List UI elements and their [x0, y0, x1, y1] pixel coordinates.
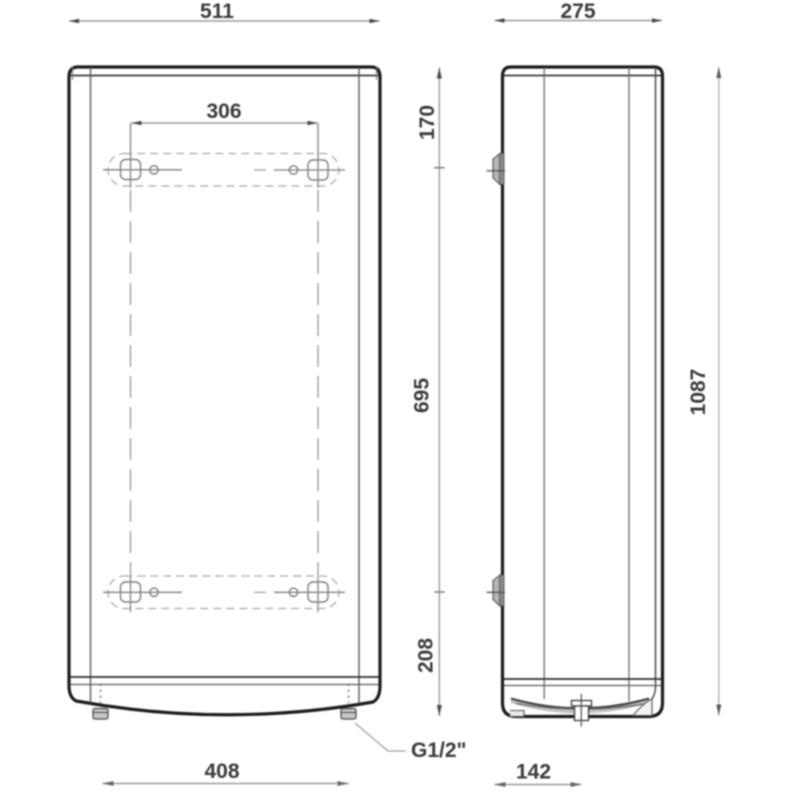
svg-text:208: 208: [415, 638, 438, 673]
svg-text:275: 275: [560, 0, 595, 23]
svg-text:511: 511: [200, 0, 234, 23]
svg-text:142: 142: [516, 761, 551, 784]
svg-text:G1/2": G1/2": [411, 739, 466, 762]
svg-text:695: 695: [411, 378, 434, 413]
svg-text:306: 306: [206, 100, 241, 123]
svg-text:170: 170: [416, 105, 439, 140]
svg-text:408: 408: [204, 760, 239, 783]
svg-text:1087: 1087: [687, 369, 710, 416]
